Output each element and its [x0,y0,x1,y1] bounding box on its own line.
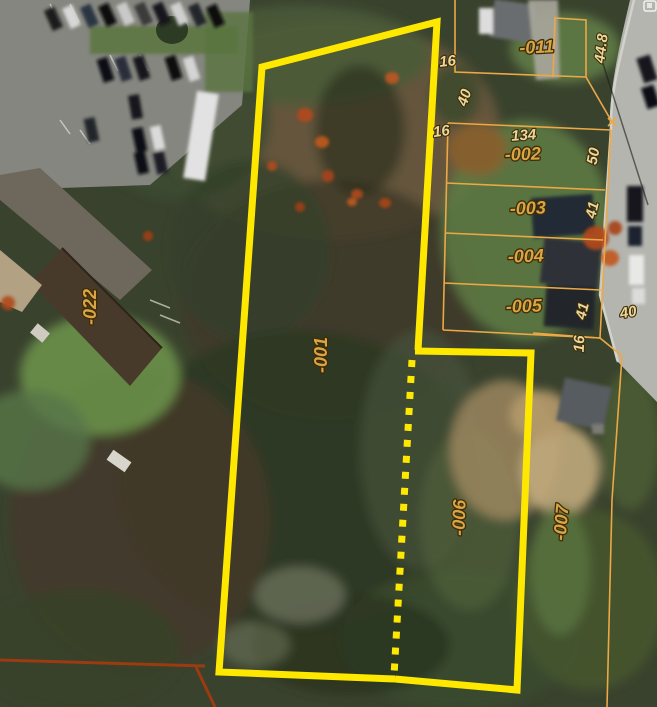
parcel-label-002: -002 [504,143,541,164]
parcel-label-007: -007 [549,503,572,542]
parcel-label-022: -022 [80,289,100,325]
parcel-label-004: -004 [507,245,544,266]
parcel-label-005: -005 [505,295,543,316]
parcel-label-011: -011 [519,36,555,58]
dimension-label: 16 [438,52,457,71]
dimension-label: 134 [511,126,538,145]
dimension-label: 16 [571,335,589,353]
parcel-label-003: -003 [509,197,546,218]
map-canvas[interactable]: -011 -002 -003 -004 -005 -001 -006 -007 … [0,0,657,707]
parcel-label-006: -006 [448,498,469,536]
parcel-label-001: -001 [311,337,331,373]
dimension-label: 40 [618,303,639,323]
aerial-parcel-map[interactable]: -011 -002 -003 -004 -005 -001 -006 -007 … [0,0,657,707]
dimension-label: 16 [432,122,452,141]
